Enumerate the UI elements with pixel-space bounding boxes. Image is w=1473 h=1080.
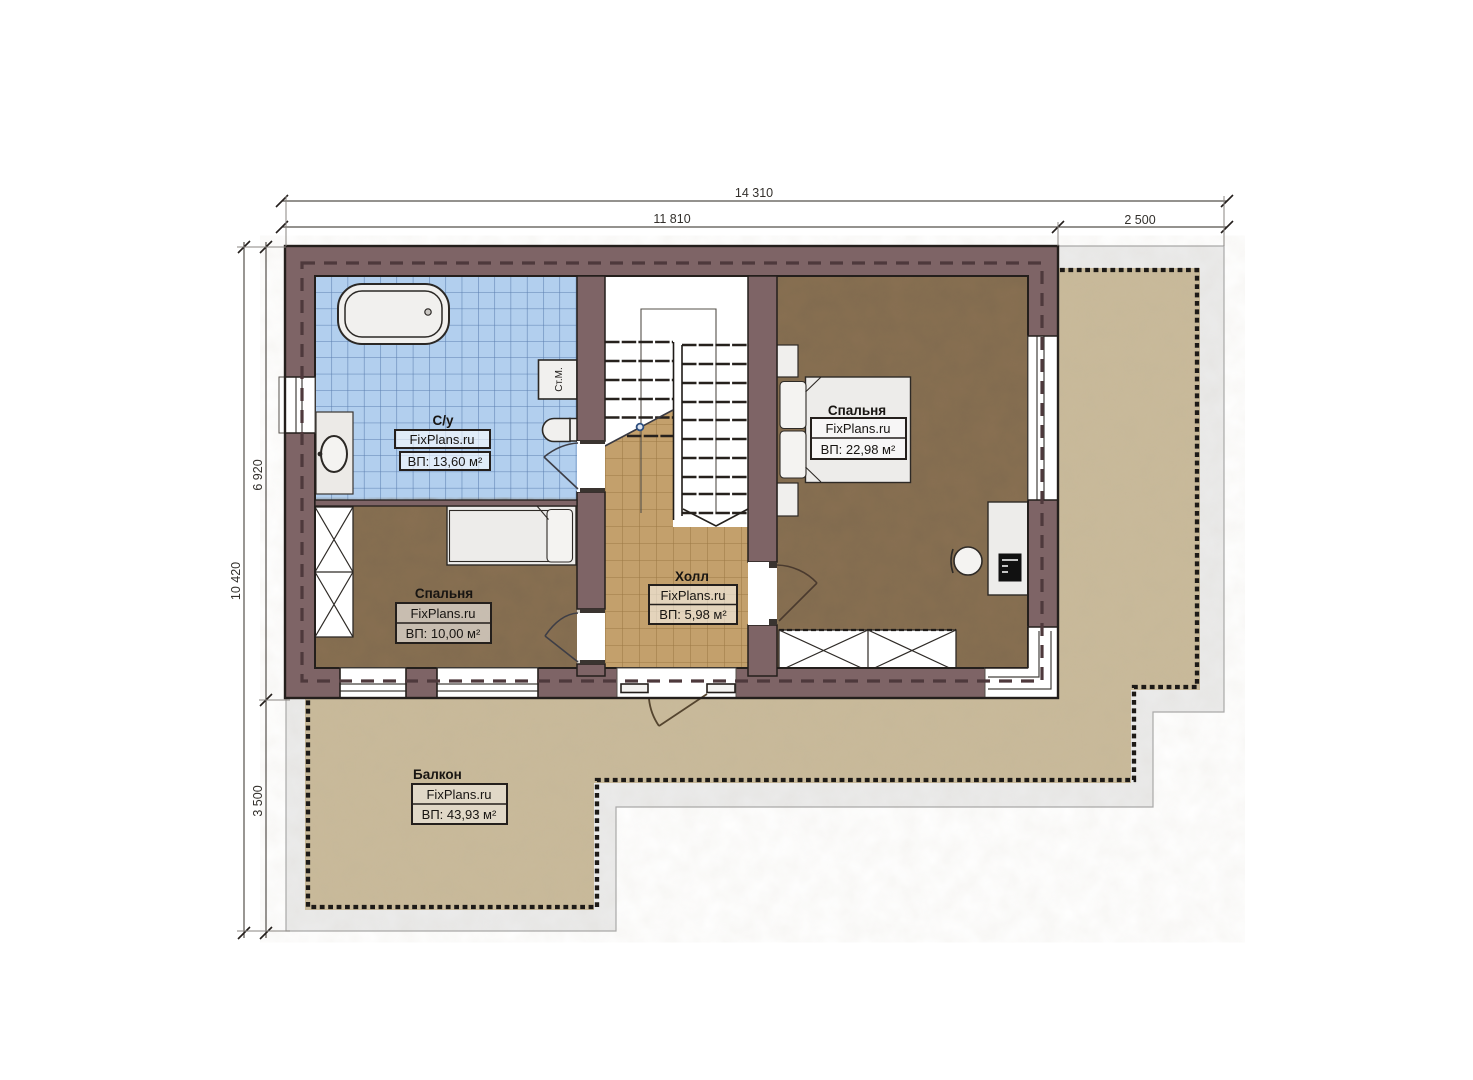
svg-text:Холл: Холл (675, 569, 709, 584)
svg-text:FixPlans.ru: FixPlans.ru (409, 432, 474, 447)
svg-text:ВП: 10,00 м²: ВП: 10,00 м² (406, 626, 481, 641)
svg-text:Спальня: Спальня (828, 403, 886, 418)
svg-text:3 500: 3 500 (251, 785, 265, 816)
svg-text:FixPlans.ru: FixPlans.ru (426, 787, 491, 802)
svg-text:11 810: 11 810 (653, 212, 690, 226)
svg-text:Балкон: Балкон (413, 767, 462, 782)
svg-text:6 920: 6 920 (251, 459, 265, 490)
svg-text:ВП: 43,93 м²: ВП: 43,93 м² (422, 807, 497, 822)
svg-text:Ст.М.: Ст.М. (554, 367, 565, 392)
svg-text:2 500: 2 500 (1124, 213, 1155, 227)
svg-text:Спальня: Спальня (415, 586, 473, 601)
svg-text:ВП: 5,98 м²: ВП: 5,98 м² (659, 607, 727, 622)
svg-text:С/у: С/у (432, 413, 454, 428)
svg-text:FixPlans.ru: FixPlans.ru (825, 421, 890, 436)
svg-text:FixPlans.ru: FixPlans.ru (410, 606, 475, 621)
svg-text:FixPlans.ru: FixPlans.ru (660, 588, 725, 603)
svg-text:ВП: 22,98 м²: ВП: 22,98 м² (821, 442, 896, 457)
svg-text:14 310: 14 310 (735, 186, 773, 200)
svg-text:10 420: 10 420 (229, 562, 243, 600)
svg-text:ВП: 13,60 м²: ВП: 13,60 м² (408, 454, 483, 469)
